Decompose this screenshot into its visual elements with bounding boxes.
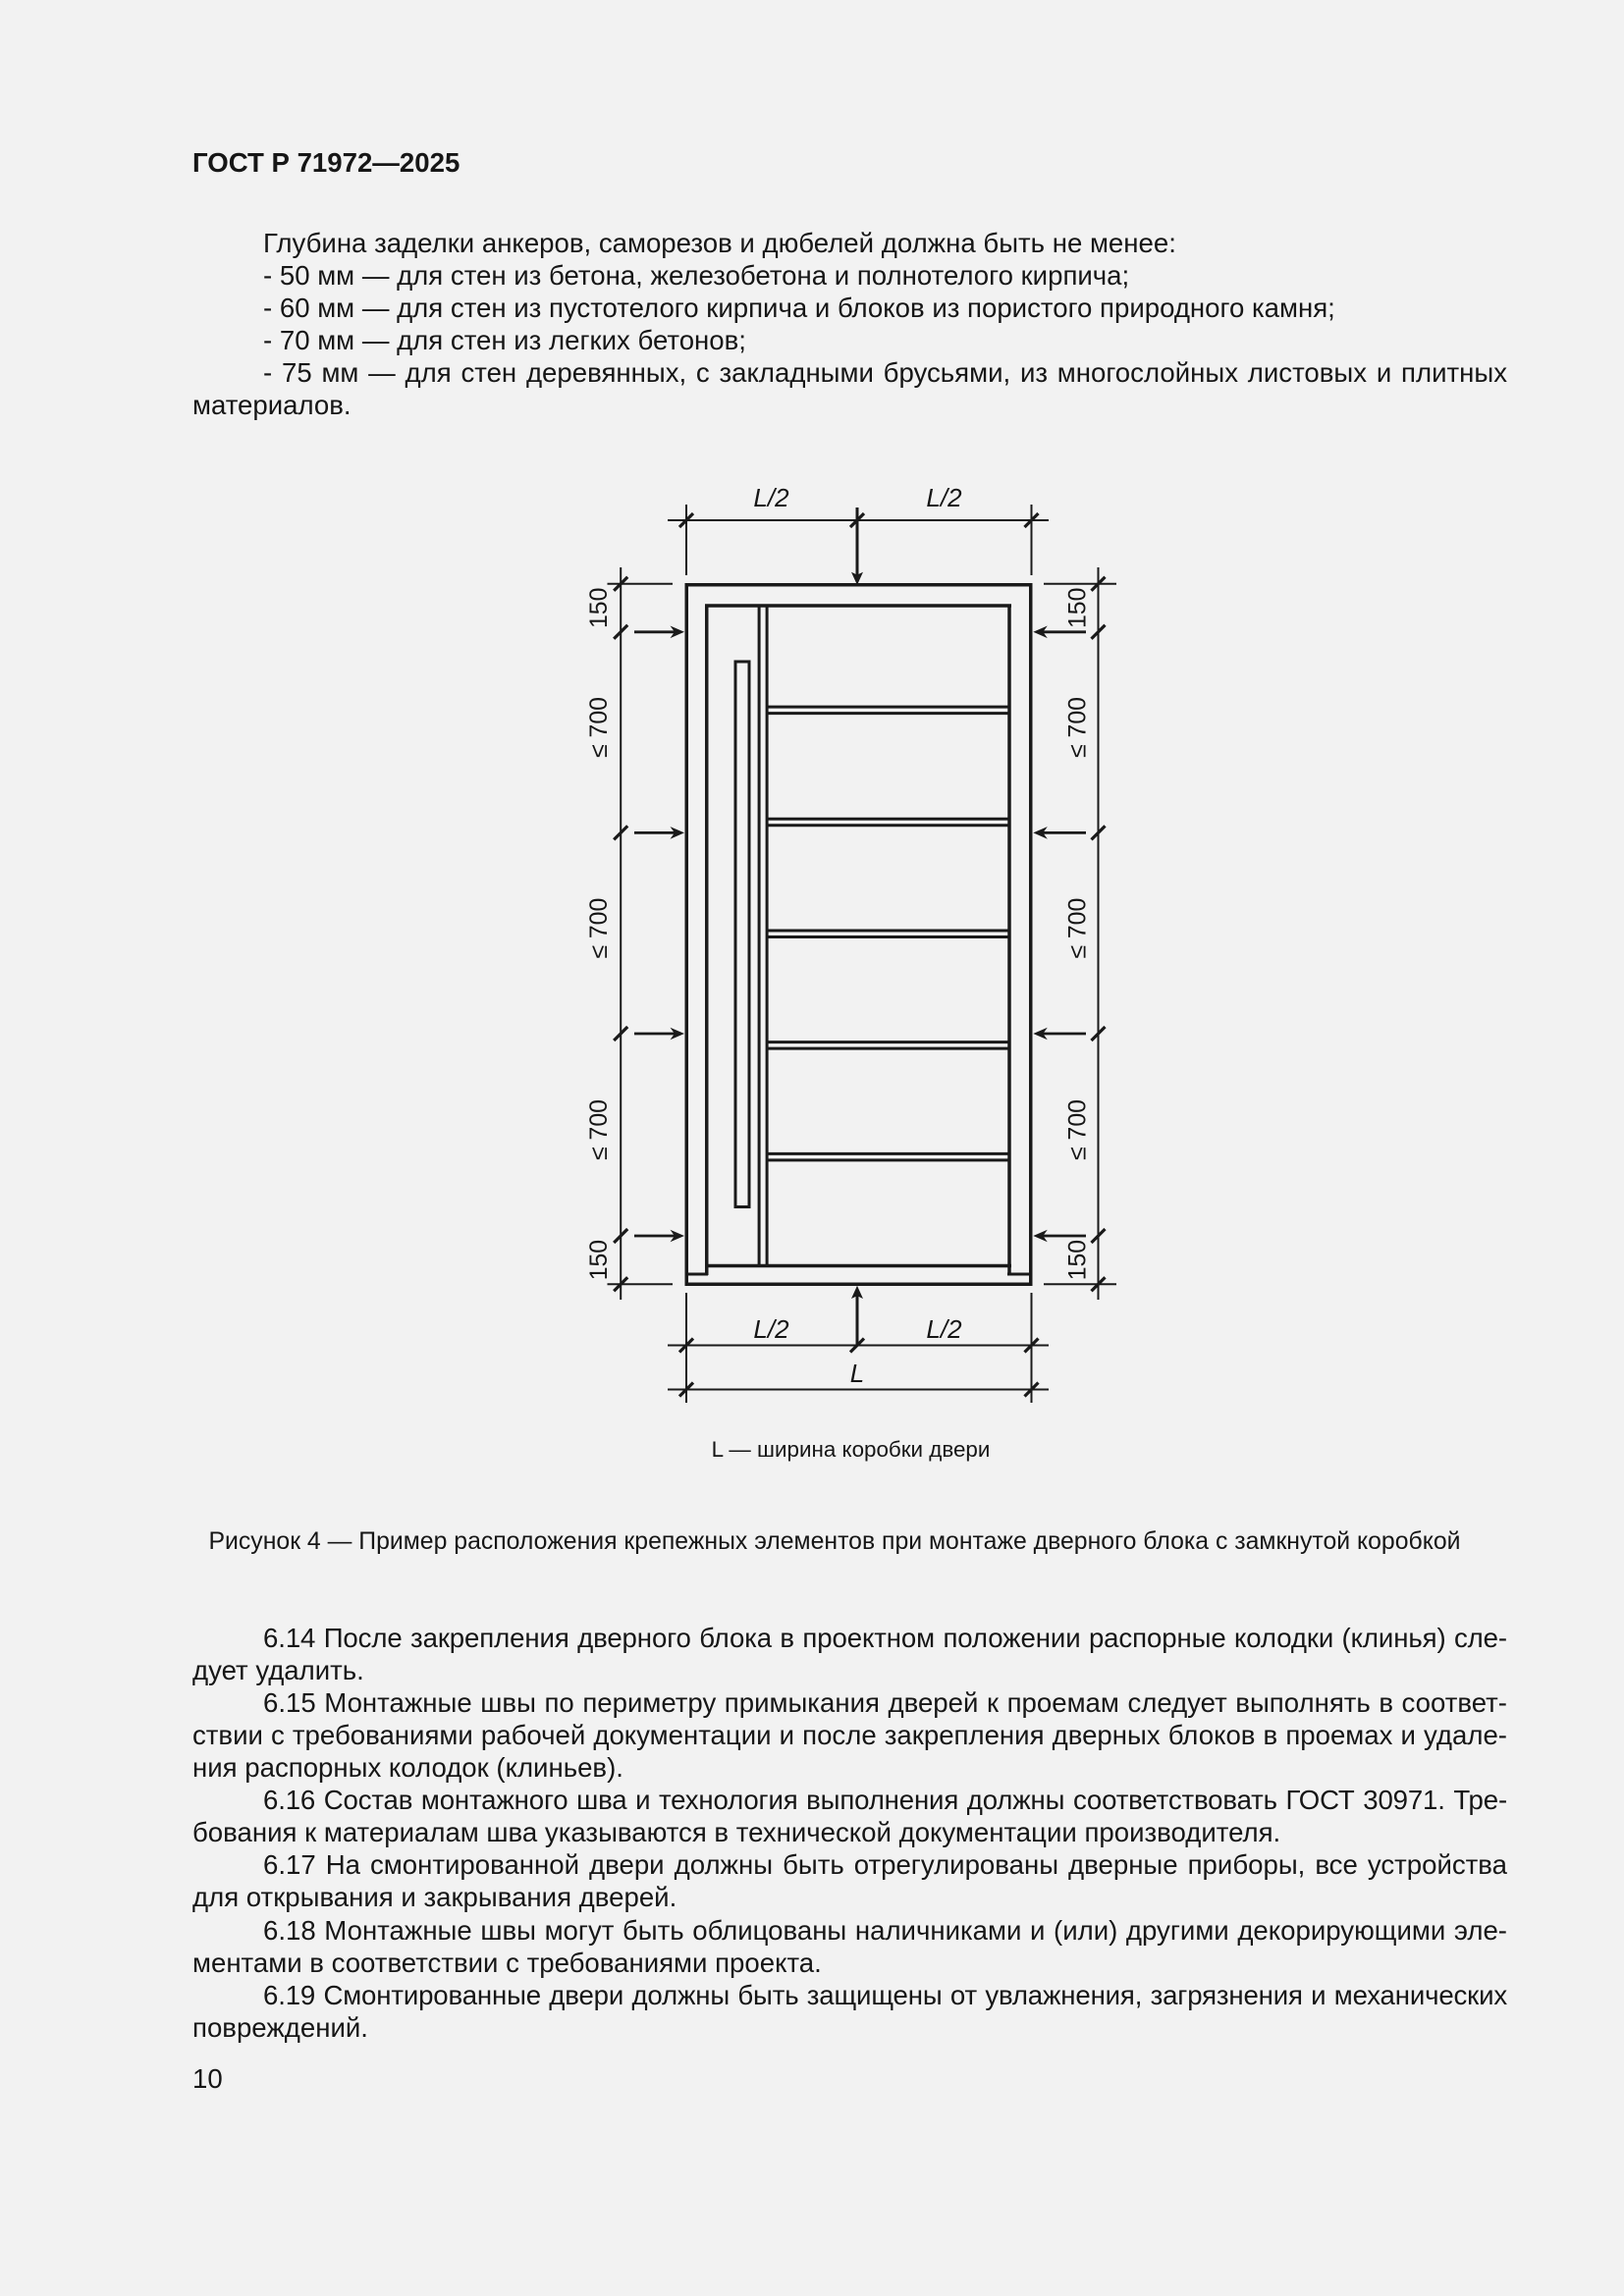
svg-text:L/2: L/2 <box>926 1314 962 1344</box>
svg-text:L: L <box>850 1359 864 1388</box>
svg-text:L/2: L/2 <box>926 483 962 512</box>
svg-text:150: 150 <box>1065 588 1092 628</box>
svg-text:L/2: L/2 <box>753 1314 789 1344</box>
svg-text:L/2: L/2 <box>753 483 789 512</box>
svg-text:150: 150 <box>1065 1240 1092 1280</box>
svg-text:≤ 700: ≤ 700 <box>1065 697 1092 758</box>
svg-text:≤ 700: ≤ 700 <box>586 1099 613 1160</box>
svg-text:150: 150 <box>586 1240 613 1280</box>
svg-text:≤ 700: ≤ 700 <box>1065 1099 1092 1160</box>
svg-text:150: 150 <box>586 588 613 628</box>
svg-text:≤ 700: ≤ 700 <box>586 898 613 959</box>
svg-text:≤ 700: ≤ 700 <box>1065 898 1092 959</box>
svg-text:≤ 700: ≤ 700 <box>586 697 613 758</box>
